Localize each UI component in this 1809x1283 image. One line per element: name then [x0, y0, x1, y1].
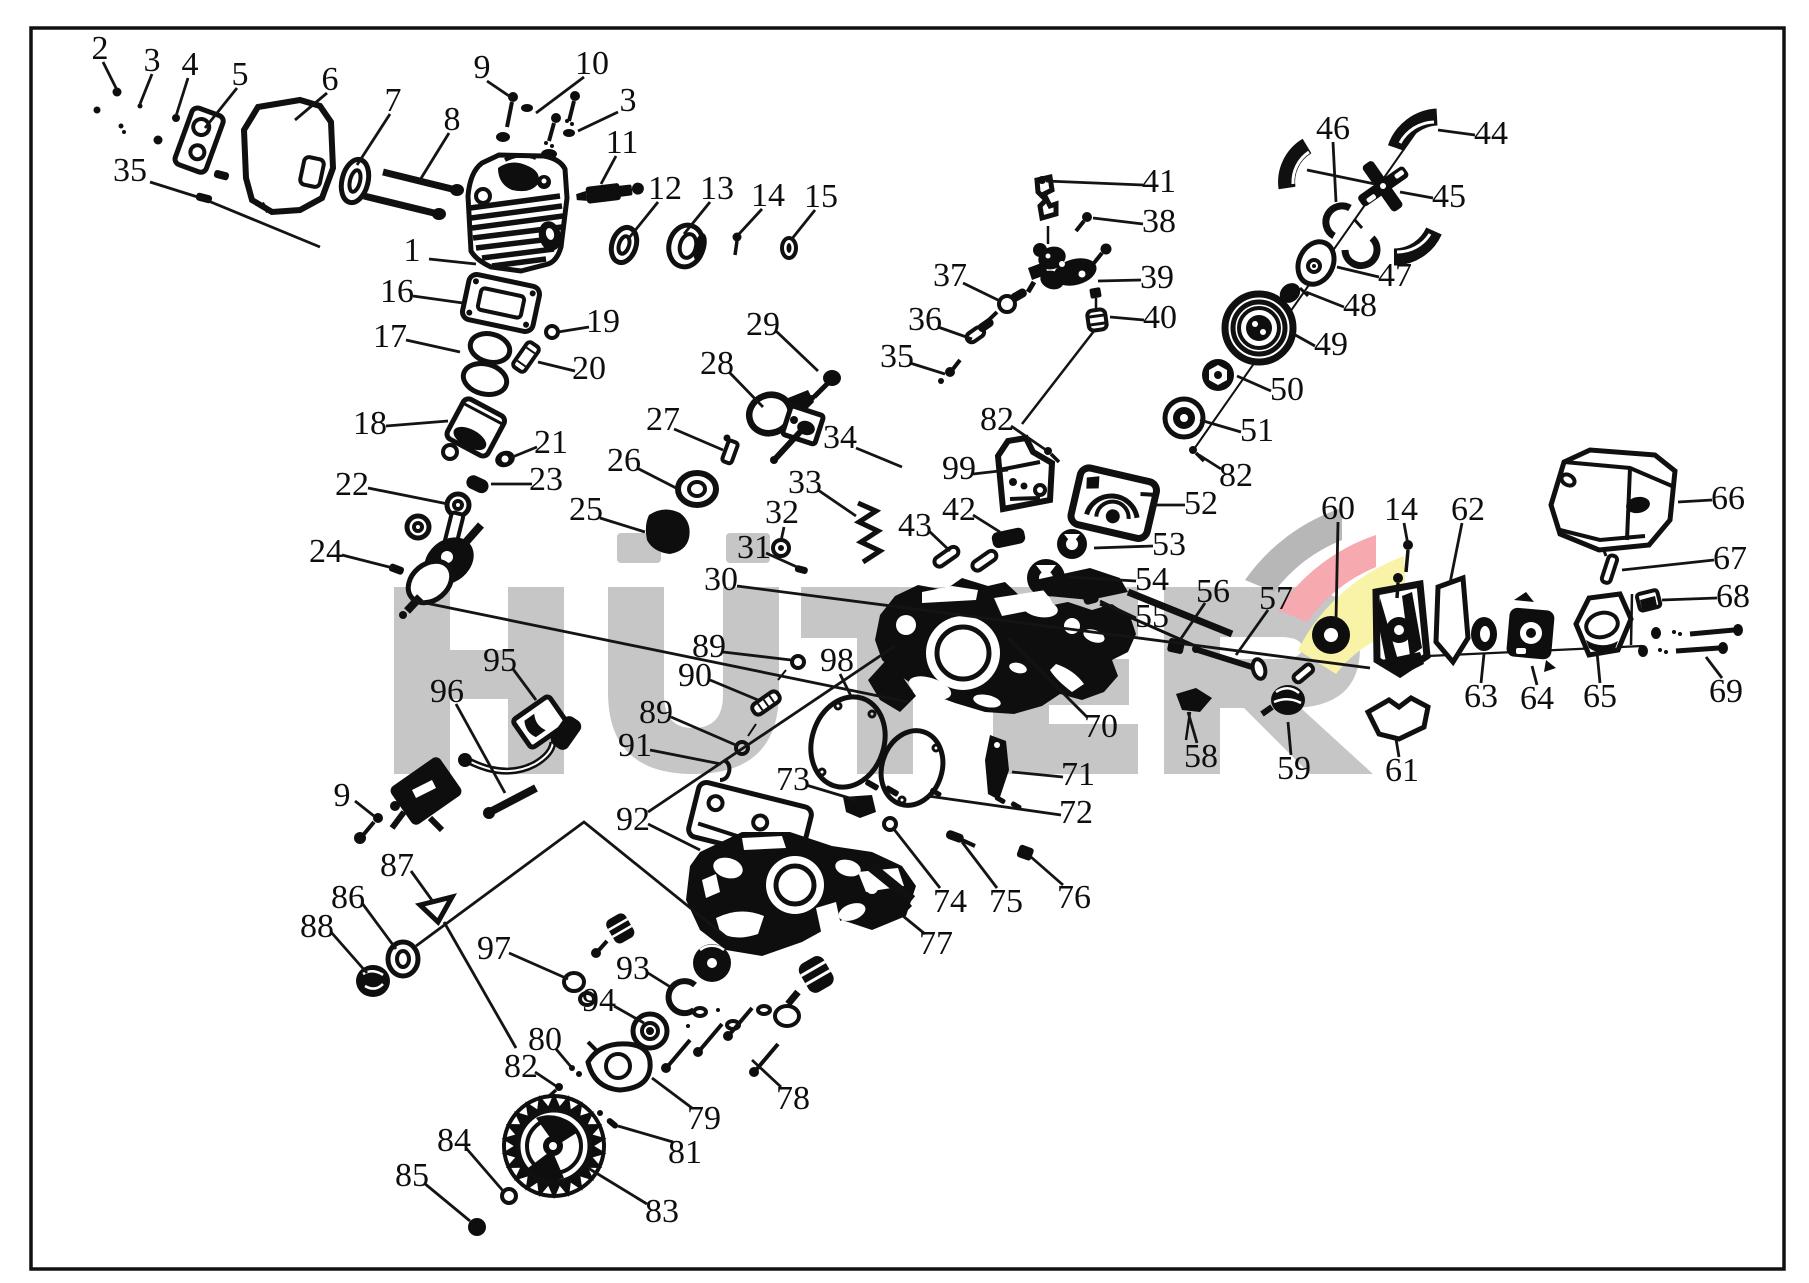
svg-text:50: 50 [1270, 371, 1304, 408]
svg-text:11: 11 [606, 124, 639, 161]
svg-text:61: 61 [1385, 752, 1419, 789]
svg-text:24: 24 [309, 533, 343, 570]
svg-text:21: 21 [534, 424, 568, 461]
svg-text:72: 72 [1059, 794, 1093, 831]
svg-text:63: 63 [1464, 678, 1498, 715]
svg-text:95: 95 [483, 642, 517, 679]
svg-text:67: 67 [1713, 540, 1747, 577]
svg-text:12: 12 [648, 170, 682, 207]
svg-text:39: 39 [1140, 259, 1174, 296]
svg-text:82: 82 [980, 401, 1014, 438]
svg-text:66: 66 [1711, 480, 1745, 517]
svg-text:86: 86 [331, 879, 365, 916]
svg-text:57: 57 [1259, 580, 1293, 617]
svg-text:81: 81 [668, 1134, 702, 1171]
svg-text:34: 34 [823, 419, 857, 456]
svg-text:45: 45 [1432, 178, 1466, 215]
svg-text:62: 62 [1451, 491, 1485, 528]
svg-text:10: 10 [575, 45, 609, 82]
svg-text:75: 75 [989, 883, 1023, 920]
svg-text:82: 82 [504, 1048, 538, 1085]
svg-text:42: 42 [942, 491, 976, 528]
svg-text:8: 8 [444, 101, 461, 138]
svg-text:99: 99 [942, 450, 976, 487]
svg-text:2: 2 [92, 30, 109, 67]
svg-text:56: 56 [1196, 573, 1230, 610]
svg-text:3: 3 [620, 82, 637, 119]
svg-text:69: 69 [1709, 673, 1743, 710]
svg-text:96: 96 [430, 673, 464, 710]
svg-text:3: 3 [144, 42, 161, 79]
svg-text:59: 59 [1277, 750, 1311, 787]
svg-text:51: 51 [1240, 412, 1274, 449]
svg-text:91: 91 [618, 727, 652, 764]
svg-text:1: 1 [404, 232, 421, 269]
svg-text:36: 36 [908, 301, 942, 338]
svg-text:20: 20 [572, 350, 606, 387]
svg-text:14: 14 [751, 177, 785, 214]
svg-text:93: 93 [616, 950, 650, 987]
svg-text:97: 97 [477, 930, 511, 967]
svg-text:15: 15 [804, 178, 838, 215]
svg-text:40: 40 [1143, 299, 1177, 336]
svg-text:49: 49 [1314, 326, 1348, 363]
svg-text:28: 28 [700, 345, 734, 382]
svg-text:76: 76 [1057, 879, 1091, 916]
svg-text:16: 16 [380, 273, 414, 310]
svg-text:87: 87 [380, 847, 414, 884]
svg-text:9: 9 [474, 49, 491, 86]
svg-text:92: 92 [616, 801, 650, 838]
svg-text:71: 71 [1061, 756, 1095, 793]
svg-text:18: 18 [353, 405, 387, 442]
svg-text:29: 29 [746, 306, 780, 343]
svg-text:4: 4 [182, 46, 199, 83]
svg-text:83: 83 [645, 1193, 679, 1230]
svg-text:78: 78 [776, 1080, 810, 1117]
svg-text:14: 14 [1384, 491, 1418, 528]
svg-text:35: 35 [880, 338, 914, 375]
svg-text:25: 25 [569, 491, 603, 528]
svg-text:22: 22 [335, 466, 369, 503]
svg-text:43: 43 [898, 507, 932, 544]
svg-text:52: 52 [1184, 485, 1218, 522]
svg-text:37: 37 [933, 257, 967, 294]
svg-text:73: 73 [776, 761, 810, 798]
svg-text:9: 9 [334, 777, 351, 814]
svg-text:53: 53 [1152, 526, 1186, 563]
svg-text:65: 65 [1583, 678, 1617, 715]
svg-text:77: 77 [919, 925, 953, 962]
svg-text:47: 47 [1378, 257, 1412, 294]
svg-text:17: 17 [373, 318, 407, 355]
svg-text:31: 31 [737, 529, 771, 566]
svg-text:44: 44 [1474, 115, 1508, 152]
svg-text:94: 94 [582, 982, 616, 1019]
svg-text:74: 74 [933, 883, 967, 920]
svg-text:19: 19 [586, 303, 620, 340]
svg-text:7: 7 [385, 82, 402, 119]
svg-text:26: 26 [607, 442, 641, 479]
svg-text:54: 54 [1135, 561, 1169, 598]
svg-text:55: 55 [1135, 598, 1169, 635]
svg-text:60: 60 [1321, 490, 1355, 527]
svg-text:89: 89 [639, 694, 673, 731]
svg-text:64: 64 [1520, 680, 1554, 717]
svg-text:46: 46 [1316, 110, 1350, 147]
svg-text:58: 58 [1184, 738, 1218, 775]
svg-text:5: 5 [232, 56, 249, 93]
svg-text:70: 70 [1084, 708, 1118, 745]
svg-text:6: 6 [322, 61, 339, 98]
svg-text:79: 79 [687, 1100, 721, 1137]
svg-text:13: 13 [700, 170, 734, 207]
svg-text:82: 82 [1219, 457, 1253, 494]
svg-text:84: 84 [437, 1122, 471, 1159]
svg-text:30: 30 [704, 561, 738, 598]
svg-text:35: 35 [113, 152, 147, 189]
svg-text:68: 68 [1716, 578, 1750, 615]
svg-text:85: 85 [395, 1157, 429, 1194]
svg-text:32: 32 [765, 494, 799, 531]
svg-text:41: 41 [1142, 163, 1176, 200]
svg-text:88: 88 [300, 908, 334, 945]
svg-text:27: 27 [646, 401, 680, 438]
svg-text:98: 98 [820, 642, 854, 679]
svg-text:38: 38 [1142, 203, 1176, 240]
svg-text:23: 23 [529, 461, 563, 498]
svg-text:48: 48 [1343, 287, 1377, 324]
svg-text:90: 90 [678, 657, 712, 694]
